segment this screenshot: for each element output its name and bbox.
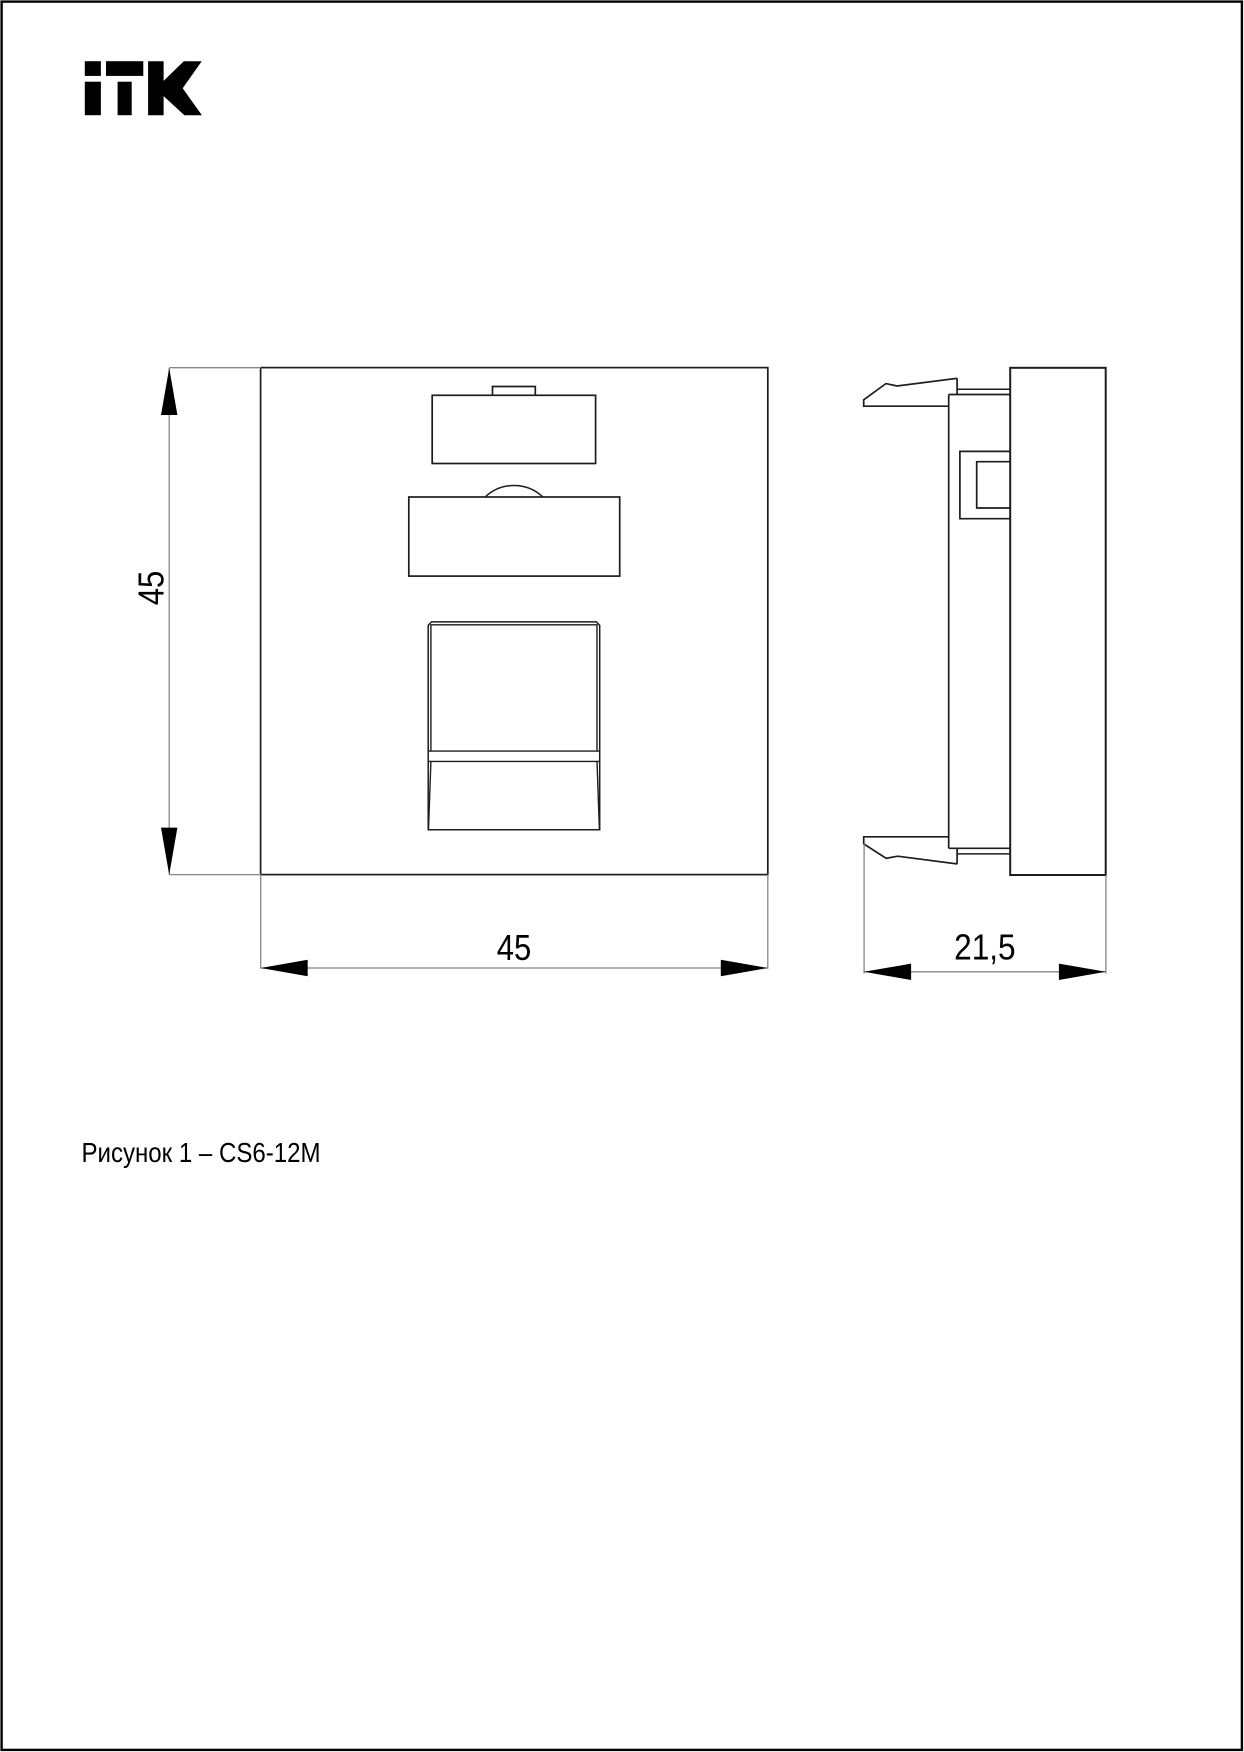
svg-text:45: 45 — [497, 927, 532, 968]
svg-text:21,5: 21,5 — [954, 927, 1016, 968]
svg-text:45: 45 — [130, 571, 171, 606]
svg-text:Рисунок 1 – CS6-12M: Рисунок 1 – CS6-12M — [82, 1136, 321, 1168]
